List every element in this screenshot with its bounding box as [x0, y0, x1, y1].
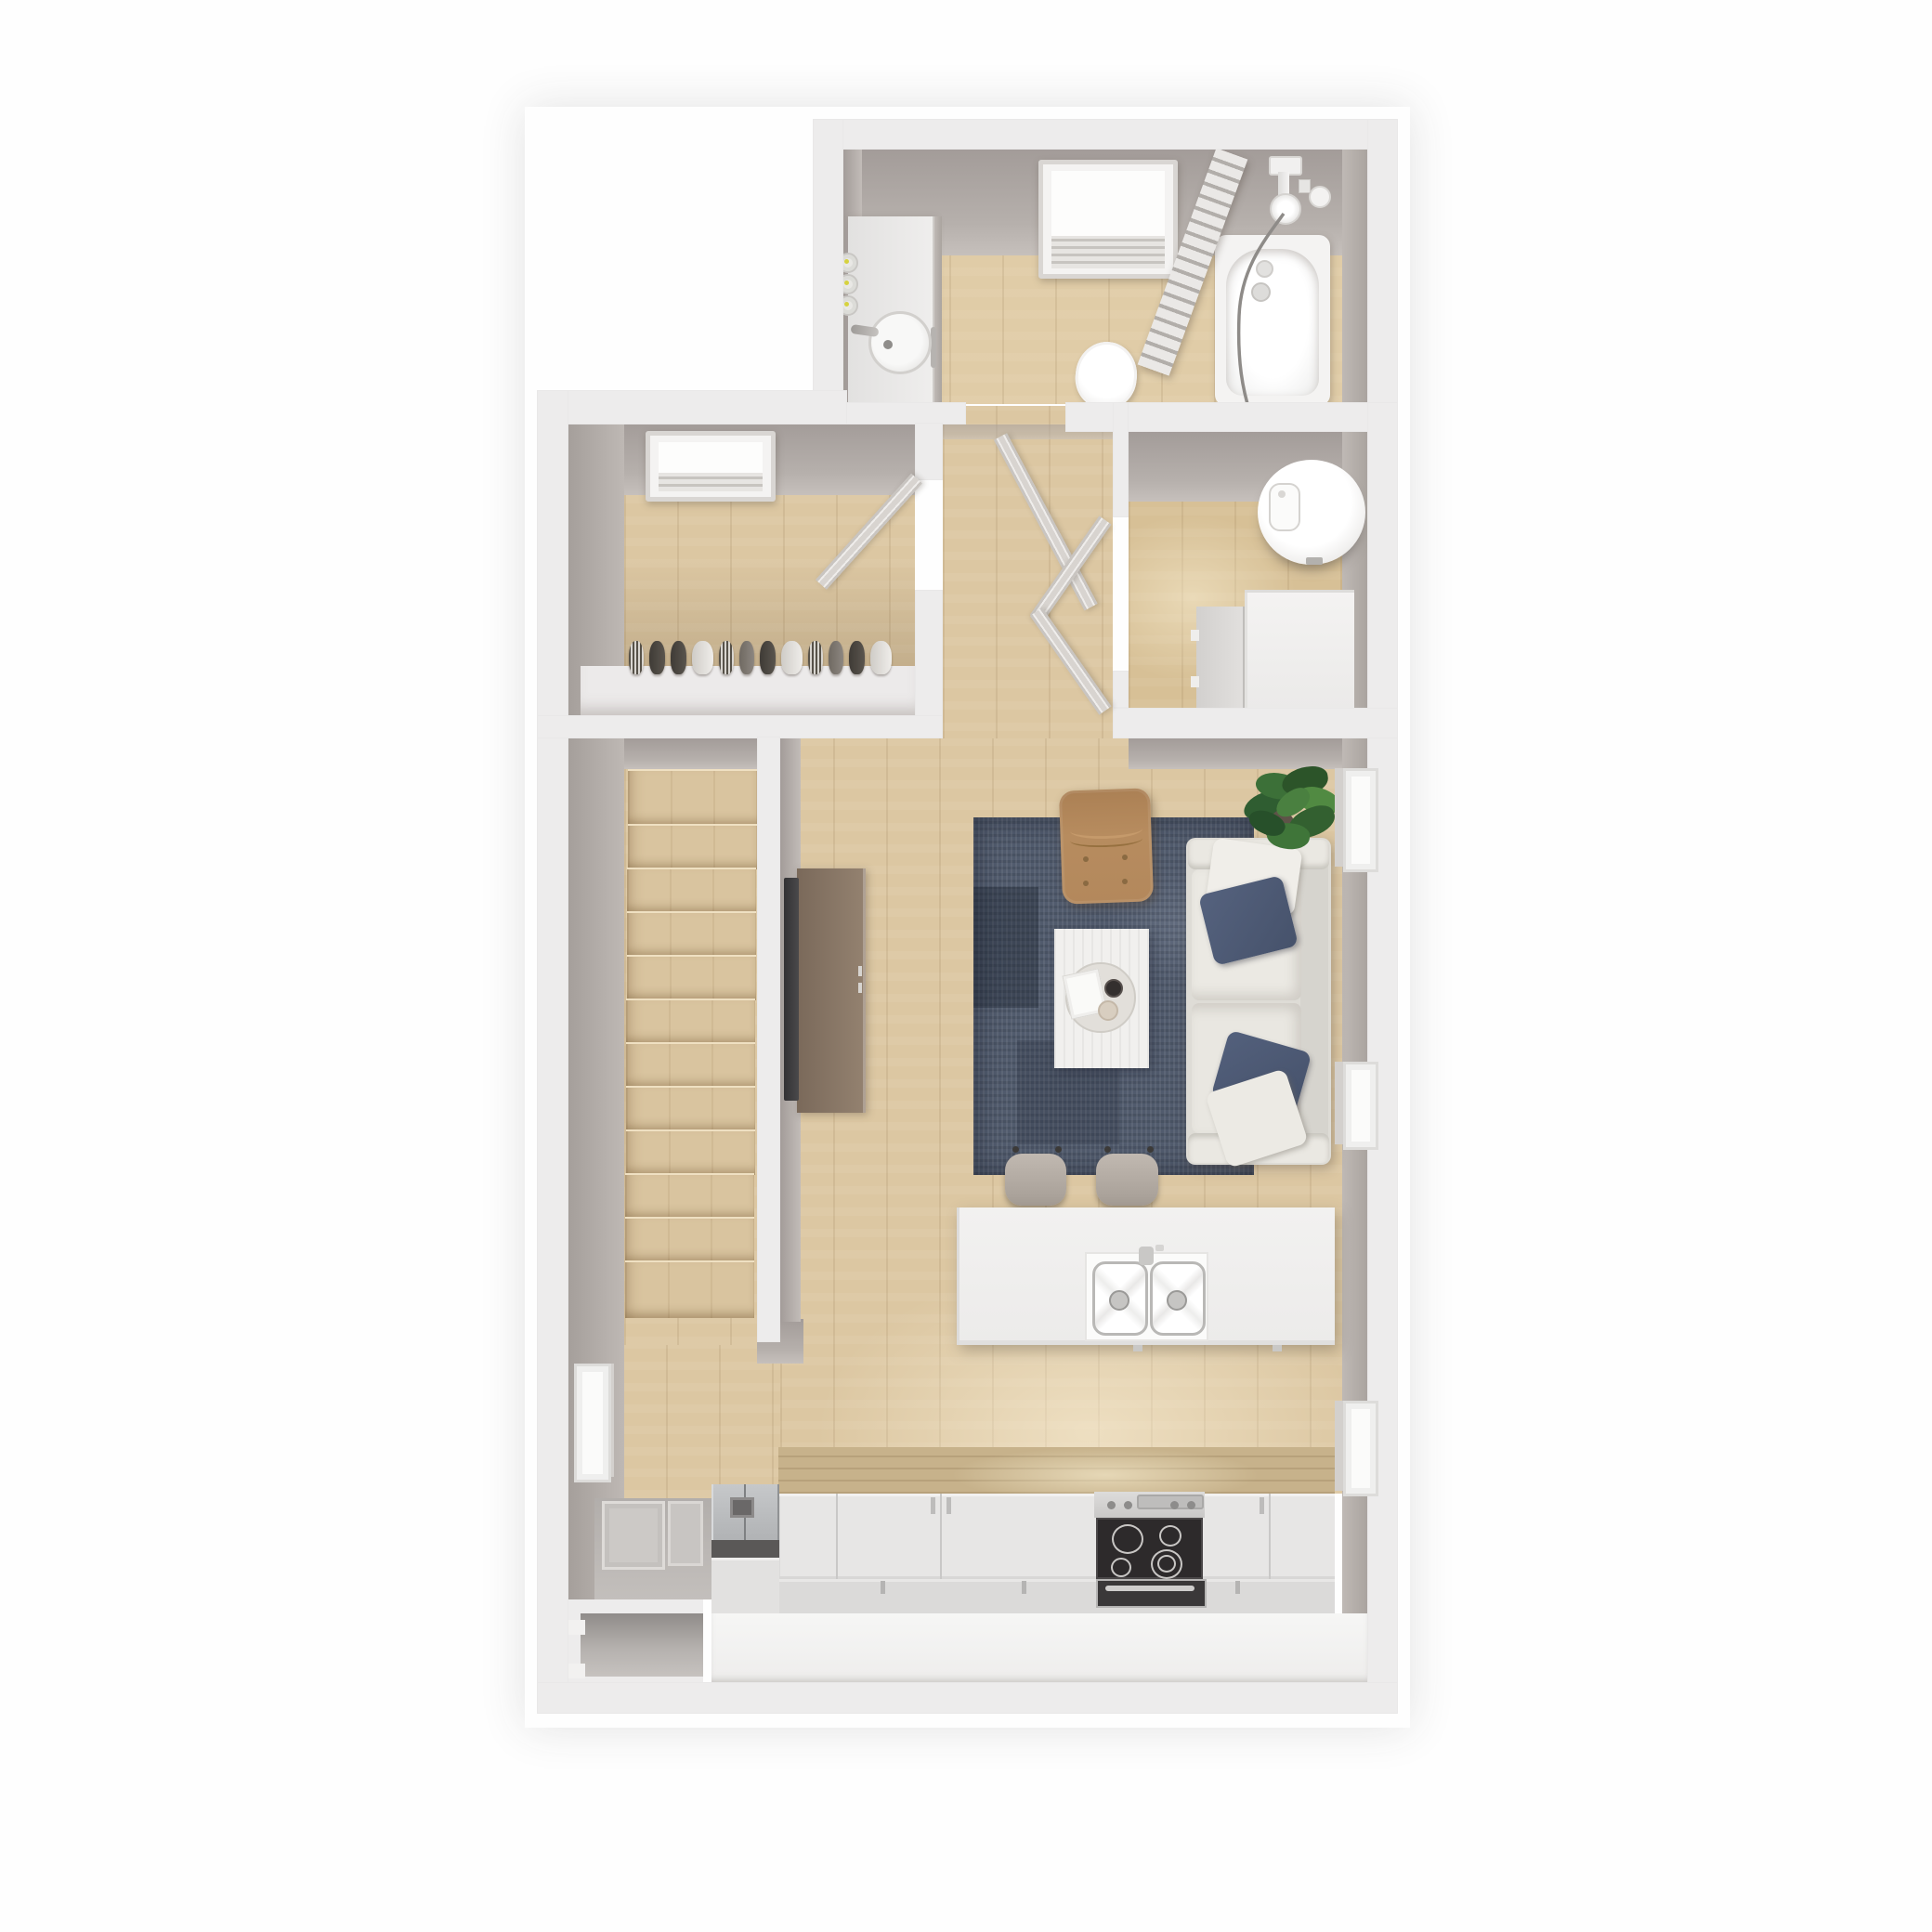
stair-tread — [628, 824, 757, 869]
cabinet-handle — [946, 1497, 951, 1514]
stair-tread — [626, 999, 755, 1044]
counter-row-upper — [778, 1494, 1335, 1579]
counter-row-lower — [778, 1579, 1335, 1613]
basin-drain — [1109, 1290, 1129, 1311]
clothes-item — [629, 641, 644, 674]
wall-stair-divider — [757, 737, 780, 1342]
stair-tread — [627, 868, 756, 913]
sofa-back — [1300, 842, 1328, 1161]
wall-light-dot — [844, 259, 849, 264]
closet-skylight — [646, 431, 776, 502]
bar-stool — [1096, 1154, 1158, 1206]
tray-cup-dark — [1104, 979, 1123, 998]
clothes-item — [760, 641, 776, 674]
stool-leg — [1012, 1146, 1019, 1153]
porch-hinge — [567, 1620, 585, 1635]
utility-cabinet — [1196, 607, 1245, 708]
island-handle — [1273, 1345, 1282, 1351]
stove-knob — [1124, 1501, 1132, 1509]
stairwell-top-face — [624, 738, 757, 769]
skylight-glass — [1051, 171, 1165, 237]
clothes-item — [671, 641, 686, 674]
living-window-lower — [1343, 1062, 1378, 1150]
kitchen-backsplash-face — [778, 1447, 1335, 1494]
vanity-side-face — [934, 216, 942, 404]
stair-tread — [627, 911, 756, 957]
bar-stool — [1005, 1154, 1066, 1206]
cabinet-handle — [1022, 1581, 1026, 1594]
bathroom-skylight — [1038, 160, 1178, 279]
stair-tread — [626, 1129, 755, 1175]
counter-seam — [836, 1494, 838, 1579]
clothes-item — [829, 641, 843, 674]
console-handle — [858, 966, 862, 976]
counter-seam — [940, 1494, 942, 1579]
clothes-item — [808, 641, 823, 674]
stair-tread — [627, 955, 756, 1000]
fridge-bottom-band — [711, 1540, 779, 1558]
cabinet-handle — [1235, 1581, 1240, 1594]
porch-hinge — [567, 1664, 585, 1678]
skylight-glass — [659, 442, 763, 476]
towel-bar — [931, 327, 936, 368]
wall-bath-left — [813, 119, 843, 424]
armchair-tuft — [1083, 881, 1089, 886]
stool-leg — [1147, 1146, 1154, 1153]
wall-left-outer — [537, 390, 568, 1714]
clothes-item — [692, 641, 713, 674]
counter-seam — [1269, 1494, 1271, 1579]
left-wall-face — [568, 423, 624, 1682]
vanity-sink — [868, 311, 932, 374]
stool-leg — [1055, 1146, 1062, 1153]
floor-plan-canvas — [0, 0, 1932, 1932]
washing-machine — [1245, 590, 1354, 708]
stair-tread — [625, 1173, 754, 1219]
cabinet-handle — [931, 1497, 935, 1514]
kitchen-window — [1343, 1401, 1378, 1496]
cabinet-handle — [1260, 1497, 1264, 1514]
washer-hinge — [1191, 676, 1199, 687]
heater-panel — [1269, 483, 1300, 531]
cooktop-burner — [1159, 1525, 1181, 1547]
cooktop-burner — [1112, 1524, 1143, 1554]
armchair-tuft — [1122, 879, 1128, 884]
fridge-dispenser — [730, 1497, 754, 1518]
wall-right-outer — [1367, 402, 1398, 1714]
stair-tread — [625, 1260, 754, 1318]
living-top-face — [1129, 738, 1342, 769]
hallway-floor — [943, 406, 1113, 752]
stair-tread — [626, 1042, 755, 1088]
stove-knob — [1170, 1501, 1179, 1509]
wall-bottom-outer — [537, 1682, 1398, 1714]
wall-light-dot — [844, 302, 849, 307]
stair-tread — [625, 1217, 754, 1262]
bathroom-right-face — [1342, 150, 1367, 404]
console-handle — [858, 983, 862, 993]
heater-dot — [1278, 490, 1286, 498]
stool-leg — [1104, 1146, 1111, 1153]
tv-console — [797, 868, 866, 1113]
clothes-item — [870, 641, 892, 674]
cooktop-burner-inner — [1157, 1555, 1176, 1573]
tray-cup-cream — [1098, 1000, 1118, 1021]
porch-interior — [581, 1613, 703, 1677]
living-window-upper — [1343, 768, 1378, 872]
stair-tread — [626, 1086, 755, 1131]
window-sill — [1335, 1062, 1343, 1144]
heater-pipe — [1306, 557, 1323, 565]
stove-knob — [1187, 1501, 1195, 1509]
window-sill — [1335, 768, 1343, 867]
entry-window — [574, 1364, 611, 1482]
washer-hinge — [1191, 630, 1199, 641]
cooktop-burner — [1111, 1558, 1131, 1577]
wall-top-left-band — [537, 390, 847, 424]
cabinet-handle — [881, 1581, 885, 1594]
clothes-item — [719, 641, 734, 674]
clothes-item — [781, 641, 803, 674]
stove-knob — [1107, 1501, 1116, 1509]
sink-drain — [883, 340, 893, 349]
front-door-sidelite — [668, 1501, 703, 1566]
shower-hose — [1217, 204, 1328, 427]
closet-clothes-rail — [626, 639, 905, 674]
island-faucet-handle — [1155, 1245, 1164, 1251]
island-handle — [1133, 1345, 1142, 1351]
oven-handle — [1105, 1586, 1194, 1591]
clothes-item — [649, 641, 665, 674]
cabinet-below-fridge — [711, 1558, 779, 1613]
clothes-item — [849, 641, 865, 674]
kitchen-fascia — [711, 1613, 1367, 1682]
clothes-item — [739, 641, 754, 674]
tv-screen — [784, 878, 799, 1101]
shower-diverter — [1299, 179, 1311, 193]
wall-light-dot — [844, 281, 849, 285]
oven-door — [1096, 1579, 1207, 1608]
wall-hall-utility-upper — [1113, 402, 1129, 517]
wall-bath-right — [1367, 119, 1398, 432]
stair-tread — [628, 769, 757, 826]
skylight-blind — [1051, 236, 1165, 268]
armchair-tuft — [1083, 856, 1089, 862]
window-sill — [1335, 1401, 1343, 1491]
wall-closet-south — [537, 715, 943, 738]
basin-drain — [1167, 1290, 1187, 1311]
bathroom-vanity — [848, 216, 934, 404]
skylight-blind — [659, 473, 763, 491]
wall-bath-top — [813, 119, 1398, 150]
armchair-tuft — [1122, 855, 1128, 860]
wall-utility-south — [1113, 708, 1398, 738]
front-door-open — [602, 1501, 665, 1570]
wall-hall-utility-lower — [1113, 671, 1129, 708]
island-faucet — [1139, 1247, 1154, 1265]
wall-closet-hall-upper — [915, 423, 943, 480]
potted-plant — [1243, 767, 1339, 856]
